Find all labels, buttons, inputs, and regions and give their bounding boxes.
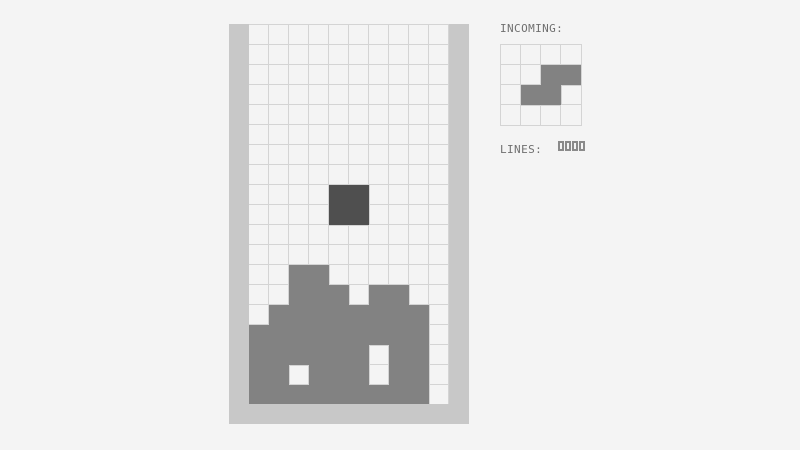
board-cell: [389, 85, 409, 105]
board-cell: [289, 185, 309, 205]
stack-cell: [349, 385, 369, 405]
board-cell: [429, 285, 449, 305]
board-cell: [369, 205, 389, 225]
stack-cell: [389, 325, 409, 345]
board-cell: [309, 105, 329, 125]
board-cell: [429, 225, 449, 245]
stack-cell: [389, 385, 409, 405]
board-cell: [269, 245, 289, 265]
board-cell: [389, 45, 409, 65]
board-cell: [269, 65, 289, 85]
board-cell: [249, 285, 269, 305]
board-cell: [329, 265, 349, 285]
stack-cell: [369, 385, 389, 405]
stack-cell: [329, 365, 349, 385]
board-cell: [389, 205, 409, 225]
falling-piece-cell: [349, 185, 369, 205]
preview-cell: [501, 105, 521, 125]
preview-piece-cell: [521, 85, 541, 105]
board-cell: [249, 45, 269, 65]
board-cell: [309, 145, 329, 165]
board-cell: [429, 345, 449, 365]
board-cell: [269, 205, 289, 225]
board-cell: [309, 45, 329, 65]
board-cell: [429, 165, 449, 185]
preview-cell: [541, 45, 561, 65]
preview-cell: [521, 105, 541, 125]
board-cell: [409, 45, 429, 65]
board-cell: [369, 165, 389, 185]
board-cell: [409, 285, 429, 305]
board-cell: [249, 265, 269, 285]
stack-cell: [389, 305, 409, 325]
stack-cell: [269, 345, 289, 365]
stack-cell: [289, 285, 309, 305]
board-cell: [269, 45, 289, 65]
board-cell: [349, 125, 369, 145]
board-cell: [429, 65, 449, 85]
board-grid: [249, 24, 449, 405]
preview-piece-cell: [541, 65, 561, 85]
board-cell: [429, 245, 449, 265]
board-cell: [349, 25, 369, 45]
stack-cell: [389, 285, 409, 305]
stack-cell: [329, 385, 349, 405]
lines-digit-box: [572, 141, 578, 151]
board-cell: [389, 225, 409, 245]
preview-piece-cell: [541, 85, 561, 105]
stack-cell: [369, 285, 389, 305]
board-cell: [289, 45, 309, 65]
board-cell: [329, 25, 349, 45]
board-cell: [329, 125, 349, 145]
board-cell: [429, 45, 449, 65]
board-cell: [409, 145, 429, 165]
lines-value: [558, 141, 585, 151]
stack-cell: [249, 325, 269, 345]
board-cell: [369, 25, 389, 45]
stack-cell: [349, 365, 369, 385]
board-cell: [289, 25, 309, 45]
board-cell: [389, 105, 409, 125]
board-cell: [329, 85, 349, 105]
board-cell: [429, 365, 449, 385]
board-cell: [289, 125, 309, 145]
stack-cell: [309, 305, 329, 325]
board-cell: [249, 85, 269, 105]
well-floor: [229, 404, 469, 424]
lines-digit-box: [565, 141, 571, 151]
board-cell: [349, 165, 369, 185]
lines-row: LINES:: [500, 140, 585, 155]
board-cell: [329, 225, 349, 245]
board-cell: [429, 25, 449, 45]
board-cell: [249, 225, 269, 245]
stack-cell: [309, 345, 329, 365]
lines-digit-box: [579, 141, 585, 151]
board-cell: [329, 105, 349, 125]
board-cell: [249, 65, 269, 85]
stack-cell: [269, 325, 289, 345]
board-cell: [369, 265, 389, 285]
board-cell: [269, 125, 289, 145]
board-cell: [269, 25, 289, 45]
board-cell: [389, 245, 409, 265]
board-cell: [369, 345, 389, 365]
preview-cell: [561, 105, 581, 125]
incoming-label: INCOMING:: [500, 23, 563, 34]
board-cell: [369, 125, 389, 145]
board-cell: [409, 125, 429, 145]
board-cell: [349, 45, 369, 65]
stack-cell: [289, 305, 309, 325]
board-cell: [249, 205, 269, 225]
stack-cell: [309, 325, 329, 345]
board-cell: [269, 105, 289, 125]
board-cell: [429, 205, 449, 225]
board-cell: [269, 165, 289, 185]
board-cell: [409, 105, 429, 125]
board-cell: [429, 105, 449, 125]
board-cell: [409, 205, 429, 225]
board-cell: [369, 85, 389, 105]
stack-cell: [309, 385, 329, 405]
board-cell: [249, 305, 269, 325]
board-cell: [349, 85, 369, 105]
board-cell: [369, 245, 389, 265]
stack-cell: [309, 365, 329, 385]
board-cell: [409, 245, 429, 265]
board-cell: [369, 365, 389, 385]
board-cell: [409, 165, 429, 185]
incoming-preview-grid: [500, 44, 582, 126]
board-cell: [289, 105, 309, 125]
board-cell: [409, 85, 429, 105]
board-cell: [389, 265, 409, 285]
board-cell: [409, 265, 429, 285]
stack-cell: [389, 345, 409, 365]
stack-cell: [409, 325, 429, 345]
stack-cell: [249, 365, 269, 385]
stack-cell: [349, 325, 369, 345]
board-cell: [309, 165, 329, 185]
board-cell: [249, 105, 269, 125]
board-cell: [409, 25, 429, 45]
board-cell: [409, 185, 429, 205]
stack-cell: [329, 285, 349, 305]
board-cell: [389, 25, 409, 45]
board-cell: [369, 105, 389, 125]
stack-cell: [409, 385, 429, 405]
board-cell: [349, 225, 369, 245]
board-cell: [429, 385, 449, 405]
board-cell: [269, 85, 289, 105]
stack-cell: [369, 305, 389, 325]
stack-cell: [329, 325, 349, 345]
stack-cell: [309, 285, 329, 305]
stack-cell: [389, 365, 409, 385]
board-cell: [249, 125, 269, 145]
preview-piece-cell: [561, 65, 581, 85]
board-cell: [309, 25, 329, 45]
board-cell: [369, 65, 389, 85]
board-cell: [289, 65, 309, 85]
board-cell: [329, 65, 349, 85]
board-cell: [249, 145, 269, 165]
board-cell: [269, 145, 289, 165]
preview-cell: [561, 85, 581, 105]
board-cell: [289, 145, 309, 165]
board-cell: [289, 225, 309, 245]
board-cell: [309, 65, 329, 85]
preview-cell: [501, 85, 521, 105]
board-cell: [329, 145, 349, 165]
stack-cell: [409, 345, 429, 365]
stack-cell: [329, 345, 349, 365]
preview-cell: [501, 45, 521, 65]
board-cell: [269, 285, 289, 305]
board-cell: [389, 145, 409, 165]
board-cell: [309, 245, 329, 265]
board-cell: [389, 185, 409, 205]
lines-digit-box: [558, 141, 564, 151]
board-cell: [429, 85, 449, 105]
preview-cell: [521, 45, 541, 65]
board-cell: [349, 265, 369, 285]
board-cell: [349, 245, 369, 265]
board-cell: [389, 65, 409, 85]
stack-cell: [349, 305, 369, 325]
board-cell: [369, 225, 389, 245]
board-cell: [349, 105, 369, 125]
board-cell: [289, 245, 309, 265]
board-cell: [309, 125, 329, 145]
well-wall-left: [229, 24, 249, 424]
stack-cell: [329, 305, 349, 325]
well-wall-right: [449, 24, 469, 424]
board-cell: [289, 165, 309, 185]
stack-cell: [369, 325, 389, 345]
board-cell: [389, 125, 409, 145]
board-cell: [289, 85, 309, 105]
stack-cell: [269, 385, 289, 405]
board-cell: [309, 225, 329, 245]
preview-cell: [541, 105, 561, 125]
board-cell: [369, 45, 389, 65]
board-cell: [429, 145, 449, 165]
stack-cell: [269, 365, 289, 385]
board-cell: [289, 205, 309, 225]
stack-cell: [289, 265, 309, 285]
board-cell: [349, 145, 369, 165]
stack-cell: [409, 305, 429, 325]
board-cell: [269, 265, 289, 285]
board-cell: [349, 65, 369, 85]
board-cell: [329, 165, 349, 185]
game-well[interactable]: [229, 24, 469, 424]
board-cell: [429, 185, 449, 205]
stack-cell: [289, 385, 309, 405]
falling-piece-cell: [349, 205, 369, 225]
stack-cell: [269, 305, 289, 325]
stack-cell: [249, 385, 269, 405]
board-cell: [249, 25, 269, 45]
board-cell: [349, 285, 369, 305]
lines-label: LINES:: [500, 144, 542, 155]
stack-cell: [409, 365, 429, 385]
falling-piece-cell: [329, 185, 349, 205]
board-cell: [249, 185, 269, 205]
tetris-game-page: { "colors": { "background": "#f4f4f4", "…: [0, 0, 800, 450]
preview-cell: [501, 65, 521, 85]
board-cell: [329, 245, 349, 265]
board-cell: [429, 325, 449, 345]
board-cell: [309, 85, 329, 105]
board-cell: [369, 185, 389, 205]
stack-cell: [289, 325, 309, 345]
stack-cell: [349, 345, 369, 365]
stack-cell: [309, 265, 329, 285]
board-cell: [429, 305, 449, 325]
board-cell: [409, 225, 429, 245]
board-cell: [249, 245, 269, 265]
board-cell: [309, 205, 329, 225]
preview-cell: [561, 45, 581, 65]
preview-cell: [521, 65, 541, 85]
board-cell: [329, 45, 349, 65]
board-cell: [269, 225, 289, 245]
falling-piece-cell: [329, 205, 349, 225]
board-cell: [409, 65, 429, 85]
board-cell: [309, 185, 329, 205]
board-cell: [289, 365, 309, 385]
board-cell: [369, 145, 389, 165]
board-cell: [429, 265, 449, 285]
board-cell: [269, 185, 289, 205]
board-cell: [389, 165, 409, 185]
board-cell: [249, 165, 269, 185]
board-cell: [429, 125, 449, 145]
stack-cell: [289, 345, 309, 365]
stack-cell: [249, 345, 269, 365]
